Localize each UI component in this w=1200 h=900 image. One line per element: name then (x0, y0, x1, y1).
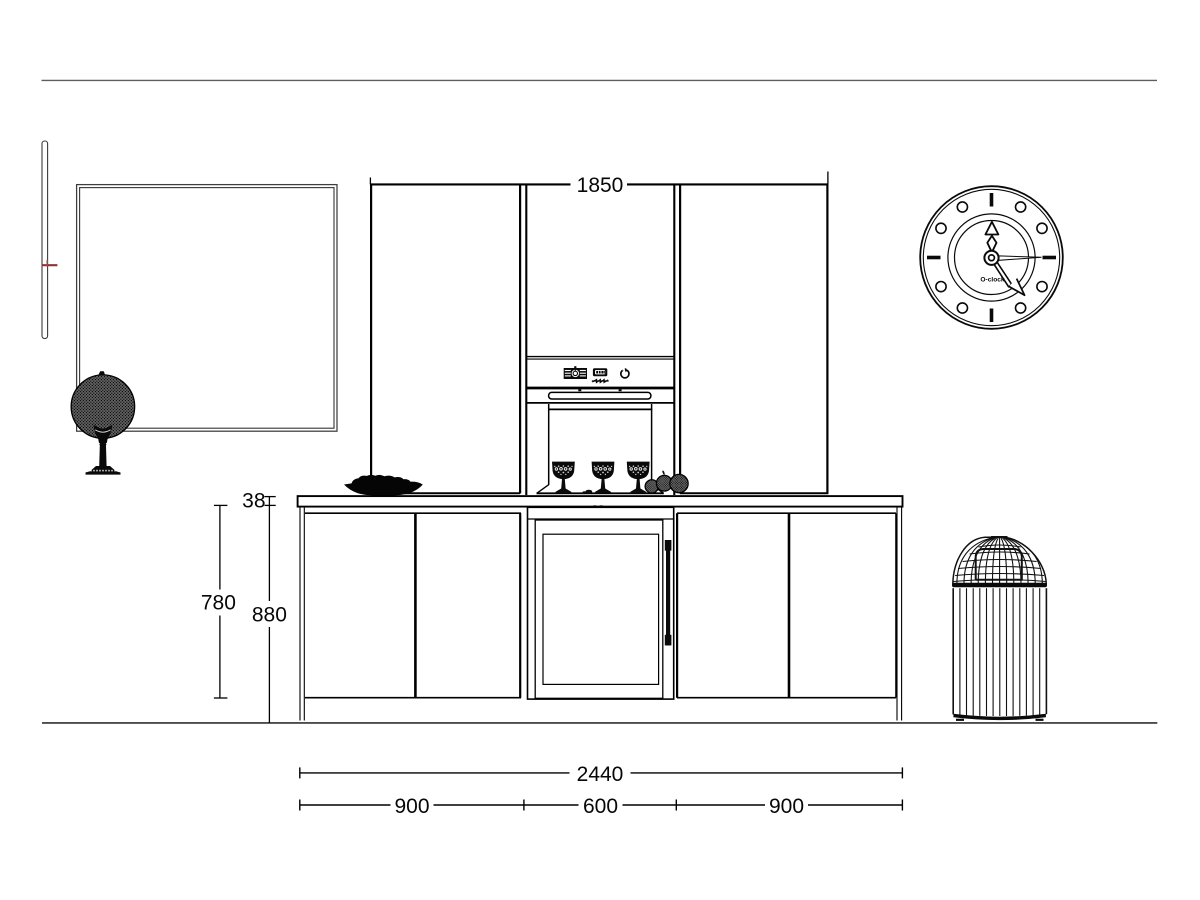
svg-text:780: 780 (201, 592, 236, 615)
svg-text:900: 900 (769, 795, 804, 818)
svg-text:1850: 1850 (577, 174, 624, 197)
svg-text:2440: 2440 (577, 763, 624, 786)
svg-text:600: 600 (583, 795, 618, 818)
svg-text:38: 38 (242, 489, 265, 512)
svg-text:900: 900 (394, 795, 429, 818)
svg-text:O-clock: O-clock (980, 277, 1005, 284)
svg-text:880: 880 (252, 604, 287, 627)
